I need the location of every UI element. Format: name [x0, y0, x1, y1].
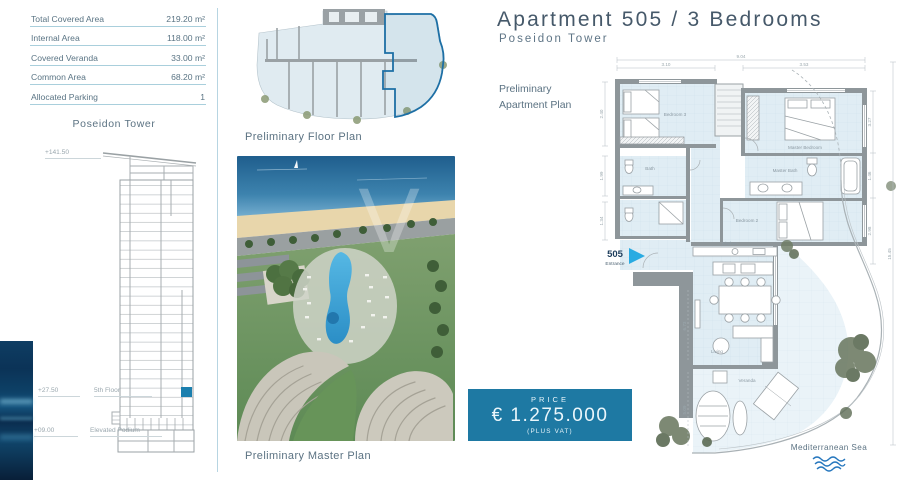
svg-text:5.09: 5.09	[682, 405, 687, 414]
entrance-number: 505	[607, 249, 624, 260]
price-label: PRICE	[531, 395, 569, 404]
area-summary-table: Total Covered Area 219.20 m² Internal Ar…	[30, 7, 206, 105]
row-label: Internal Area	[31, 33, 80, 43]
building-floor-plan	[237, 3, 462, 135]
sea-photo-strip	[0, 341, 33, 480]
svg-text:Veranda: Veranda	[738, 378, 756, 383]
svg-text:6.73: 6.73	[682, 321, 687, 330]
svg-text:9.04: 9.04	[737, 54, 746, 59]
tower-elevation-diagram	[30, 140, 210, 460]
svg-text:Master Bath: Master Bath	[773, 168, 798, 173]
svg-text:2.98: 2.98	[867, 226, 872, 235]
svg-text:1.34: 1.34	[599, 216, 604, 225]
row-label: Covered Veranda	[31, 53, 98, 63]
apartment-plan-caption: Preliminary Apartment Plan	[499, 81, 571, 114]
price-amount: € 1.275.000	[492, 405, 609, 427]
page-title: Apartment 505 / 3 Bedrooms	[497, 8, 823, 32]
svg-text:Bath: Bath	[645, 166, 655, 171]
master-plan-render: V	[237, 156, 455, 441]
svg-text:1.46: 1.46	[867, 171, 872, 180]
svg-text:15.45: 15.45	[887, 248, 892, 260]
row-value: 1	[200, 92, 205, 102]
svg-text:Living: Living	[711, 349, 723, 354]
row-value: 118.00 m²	[167, 33, 205, 43]
svg-text:Bedroom 2: Bedroom 2	[736, 218, 759, 223]
vertical-divider	[217, 8, 218, 472]
table-row: Allocated Parking 1	[30, 85, 206, 105]
floor-plan-caption: Preliminary Floor Plan	[245, 131, 362, 143]
brochure-page: Total Covered Area 219.20 m² Internal Ar…	[0, 0, 900, 480]
row-value: 219.20 m²	[166, 14, 205, 24]
elevation-annotation: +141.50	[45, 149, 101, 159]
watermark-letter: V	[358, 170, 419, 272]
svg-text:Bedroom 3: Bedroom 3	[664, 112, 687, 117]
elevation-annotation: +09.00	[34, 427, 78, 437]
row-label: Total Covered Area	[31, 14, 104, 24]
svg-text:3.27: 3.27	[867, 117, 872, 126]
table-row: Common Area 68.20 m²	[30, 66, 206, 86]
stair-core	[715, 84, 743, 136]
svg-text:1.99: 1.99	[599, 171, 604, 180]
row-value: 68.20 m²	[171, 72, 205, 82]
price-vat-note: (PLUS VAT)	[527, 428, 573, 435]
page-subtitle: Poseidon Tower	[499, 33, 609, 45]
tower-highlight-unit	[181, 387, 192, 397]
svg-text:2.40: 2.40	[599, 109, 604, 118]
tower-title: Poseidon Tower	[38, 118, 190, 130]
row-value: 33.00 m²	[171, 53, 205, 63]
entrance-label: Entrance	[605, 261, 625, 267]
svg-text:Master Bedroom: Master Bedroom	[788, 145, 822, 150]
apartment-plan: 9.04 3.10 3.53 2.40 1.99 1.34 3.27 1.46 …	[595, 50, 900, 475]
row-label: Allocated Parking	[31, 92, 98, 102]
waves-icon	[813, 457, 845, 471]
table-row: Total Covered Area 219.20 m²	[30, 7, 206, 27]
table-row: Internal Area 118.00 m²	[30, 27, 206, 47]
svg-text:Kitchen: Kitchen	[722, 241, 738, 246]
row-label: Common Area	[31, 72, 86, 82]
svg-text:3.53: 3.53	[800, 62, 809, 67]
floor-annotation: 5th Floor	[94, 387, 152, 397]
podium-annotation: Elevated Podium	[90, 427, 162, 437]
table-row: Covered Veranda 33.00 m²	[30, 46, 206, 66]
sea-label-group: Mediterranean Sea	[791, 443, 867, 471]
sea-label: Mediterranean Sea	[791, 443, 867, 452]
elevation-annotation: +27.50	[38, 387, 80, 397]
master-plan-caption: Preliminary Master Plan	[245, 450, 371, 462]
svg-text:3.10: 3.10	[662, 62, 671, 67]
